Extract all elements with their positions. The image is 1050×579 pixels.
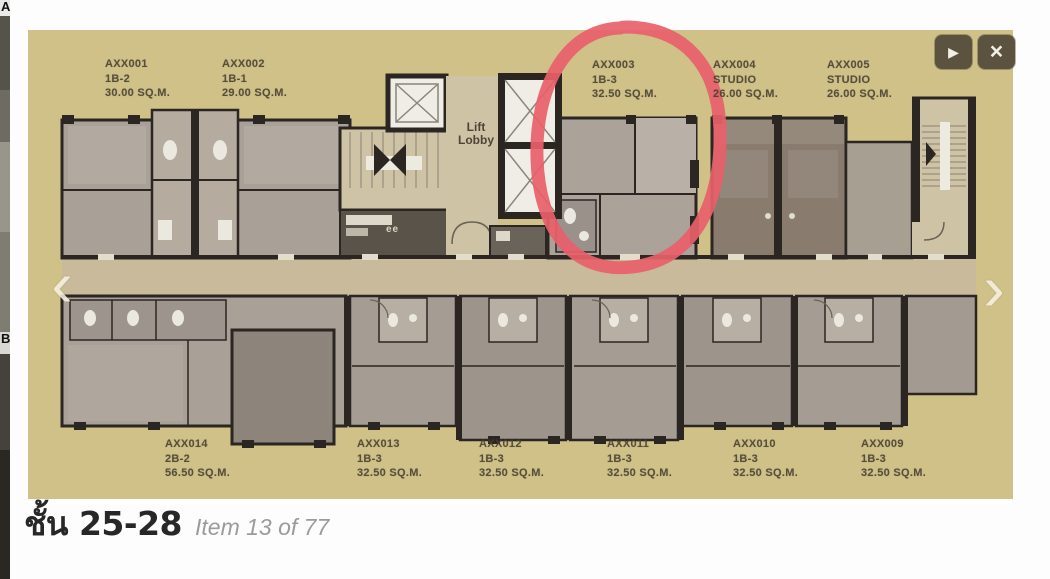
unit-type: 1B-3 xyxy=(592,73,657,88)
background-letter-a: A xyxy=(0,0,10,14)
floor-label: ชั้น 25-28 xyxy=(24,497,182,550)
unit-id: AXX002 xyxy=(222,57,287,72)
background-fragment xyxy=(0,450,10,579)
unit-area: 32.50 SQ.M. xyxy=(607,466,672,481)
unit-type: 1B-3 xyxy=(607,452,672,467)
page: A B xyxy=(0,0,1050,579)
unit-label-axx010: AXX010 1B-3 32.50 SQ.M. xyxy=(733,437,798,481)
background-letter-b: B xyxy=(0,332,10,346)
unit-area: 30.00 SQ.M. xyxy=(105,86,170,101)
unit-area: 56.50 SQ.M. xyxy=(165,466,230,481)
unit-id: AXX003 xyxy=(592,58,657,73)
background-thumbnails-strip: A B xyxy=(0,0,10,579)
unit-id: AXX004 xyxy=(713,58,778,73)
right-staircase xyxy=(912,98,976,258)
unit-type: STUDIO xyxy=(827,73,892,88)
lower-units xyxy=(62,296,976,448)
service-room-label: ee xyxy=(386,224,399,235)
chevron-right-icon: › xyxy=(983,258,1004,318)
unit-id: AXX013 xyxy=(357,437,422,452)
background-fragment xyxy=(0,354,10,450)
unit-area: 29.00 SQ.M. xyxy=(222,86,287,101)
close-button[interactable]: × xyxy=(978,35,1015,69)
unit-type: STUDIO xyxy=(713,73,778,88)
unit-area: 32.50 SQ.M. xyxy=(357,466,422,481)
unit-id: AXX005 xyxy=(827,58,892,73)
unit-id: AXX010 xyxy=(733,437,798,452)
unit-type: 1B-3 xyxy=(479,452,544,467)
background-fragment: A xyxy=(0,0,10,16)
unit-id: AXX011 xyxy=(607,437,672,452)
play-icon: ▶ xyxy=(948,45,959,59)
lift-lobby-label: Lift Lobby xyxy=(447,121,505,147)
floorplan-viewer: AXX001 1B-2 30.00 SQ.M. AXX002 1B-1 29.0… xyxy=(28,30,1013,499)
background-fragment: B xyxy=(0,332,10,354)
unit-type: 1B-3 xyxy=(861,452,926,467)
unit-type: 1B-1 xyxy=(222,72,287,87)
item-counter: Item 13 of 77 xyxy=(195,514,329,541)
background-fragment xyxy=(0,16,10,90)
unit-label-axx013: AXX013 1B-3 32.50 SQ.M. xyxy=(357,437,422,481)
unit-id: AXX012 xyxy=(479,437,544,452)
unit-id: AXX009 xyxy=(861,437,926,452)
unit-label-axx009: AXX009 1B-3 32.50 SQ.M. xyxy=(861,437,926,481)
left-staircase xyxy=(340,128,448,258)
unit-label-axx001: AXX001 1B-2 30.00 SQ.M. xyxy=(105,57,170,101)
slideshow-play-button[interactable]: ▶ xyxy=(935,35,972,69)
next-button[interactable]: › xyxy=(974,250,1014,326)
lift-lobby-line2: Lobby xyxy=(447,134,505,147)
unit-area: 26.00 SQ.M. xyxy=(827,87,892,102)
unit-area: 26.00 SQ.M. xyxy=(713,87,778,102)
unit-id: AXX001 xyxy=(105,57,170,72)
background-fragment xyxy=(0,232,10,332)
unit-label-axx011: AXX011 1B-3 32.50 SQ.M. xyxy=(607,437,672,481)
unit-area: 32.50 SQ.M. xyxy=(479,466,544,481)
background-fragment xyxy=(0,90,10,142)
caption: ชั้น 25-28 Item 13 of 77 xyxy=(24,497,329,550)
unit-type: 2B-2 xyxy=(165,452,230,467)
unit-id: AXX014 xyxy=(165,437,230,452)
unit-label-axx012: AXX012 1B-3 32.50 SQ.M. xyxy=(479,437,544,481)
unit-type: 1B-2 xyxy=(105,72,170,87)
corridor xyxy=(62,258,976,296)
unit-area: 32.50 SQ.M. xyxy=(592,87,657,102)
unit-label-axx004: AXX004 STUDIO 26.00 SQ.M. xyxy=(713,58,778,102)
unit-type: 1B-3 xyxy=(357,452,422,467)
close-icon: × xyxy=(990,40,1003,62)
unit-label-axx003: AXX003 1B-3 32.50 SQ.M. xyxy=(592,58,657,102)
unit-area: 32.50 SQ.M. xyxy=(733,466,798,481)
prev-button[interactable]: ‹ xyxy=(38,246,86,322)
unit-label-axx005: AXX005 STUDIO 26.00 SQ.M. xyxy=(827,58,892,102)
unit-label-axx014: AXX014 2B-2 56.50 SQ.M. xyxy=(165,437,230,481)
unit-area: 32.50 SQ.M. xyxy=(861,466,926,481)
background-fragment xyxy=(0,142,10,232)
unit-label-axx002: AXX002 1B-1 29.00 SQ.M. xyxy=(222,57,287,101)
unit-type: 1B-3 xyxy=(733,452,798,467)
chevron-left-icon: ‹ xyxy=(51,254,72,314)
